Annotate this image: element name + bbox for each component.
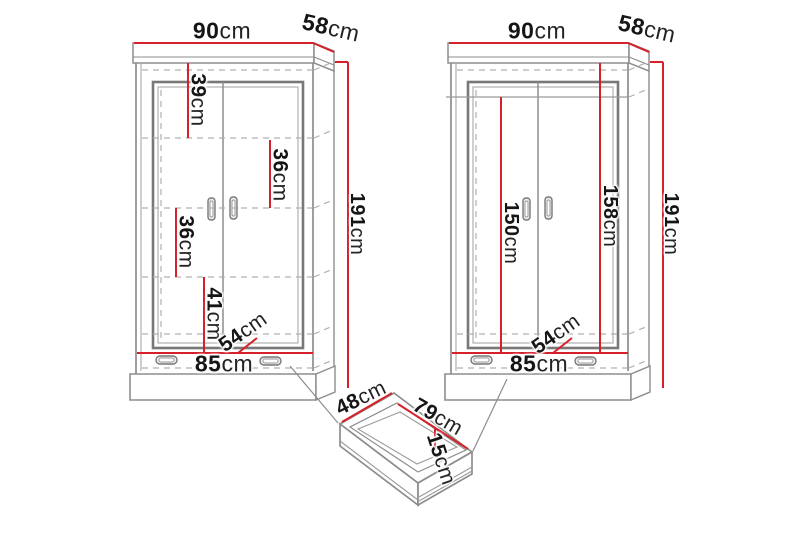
dim-label-right-hanging-height: 150cm bbox=[501, 202, 521, 265]
dim-label-left-section-top: 39cm bbox=[188, 73, 209, 126]
dim-label-left-height: 191cm bbox=[347, 193, 367, 256]
dim-label-right-width: 90cm bbox=[508, 20, 566, 43]
dim-label-left-width: 90cm bbox=[193, 20, 251, 43]
dim-label-left-section-upper: 36cm bbox=[270, 148, 291, 201]
dim-label-left-interior-width: 85cm bbox=[195, 353, 253, 376]
diagram-canvas bbox=[0, 0, 800, 533]
furniture-dimension-diagram: 90cm 58cm 191cm 39cm 36cm 36cm 41cm 85cm… bbox=[0, 0, 800, 533]
dim-label-right-height: 191cm bbox=[661, 193, 681, 256]
dim-label-right-interior-height: 158cm bbox=[600, 185, 620, 248]
dim-label-left-section-lower: 36cm bbox=[176, 215, 197, 268]
